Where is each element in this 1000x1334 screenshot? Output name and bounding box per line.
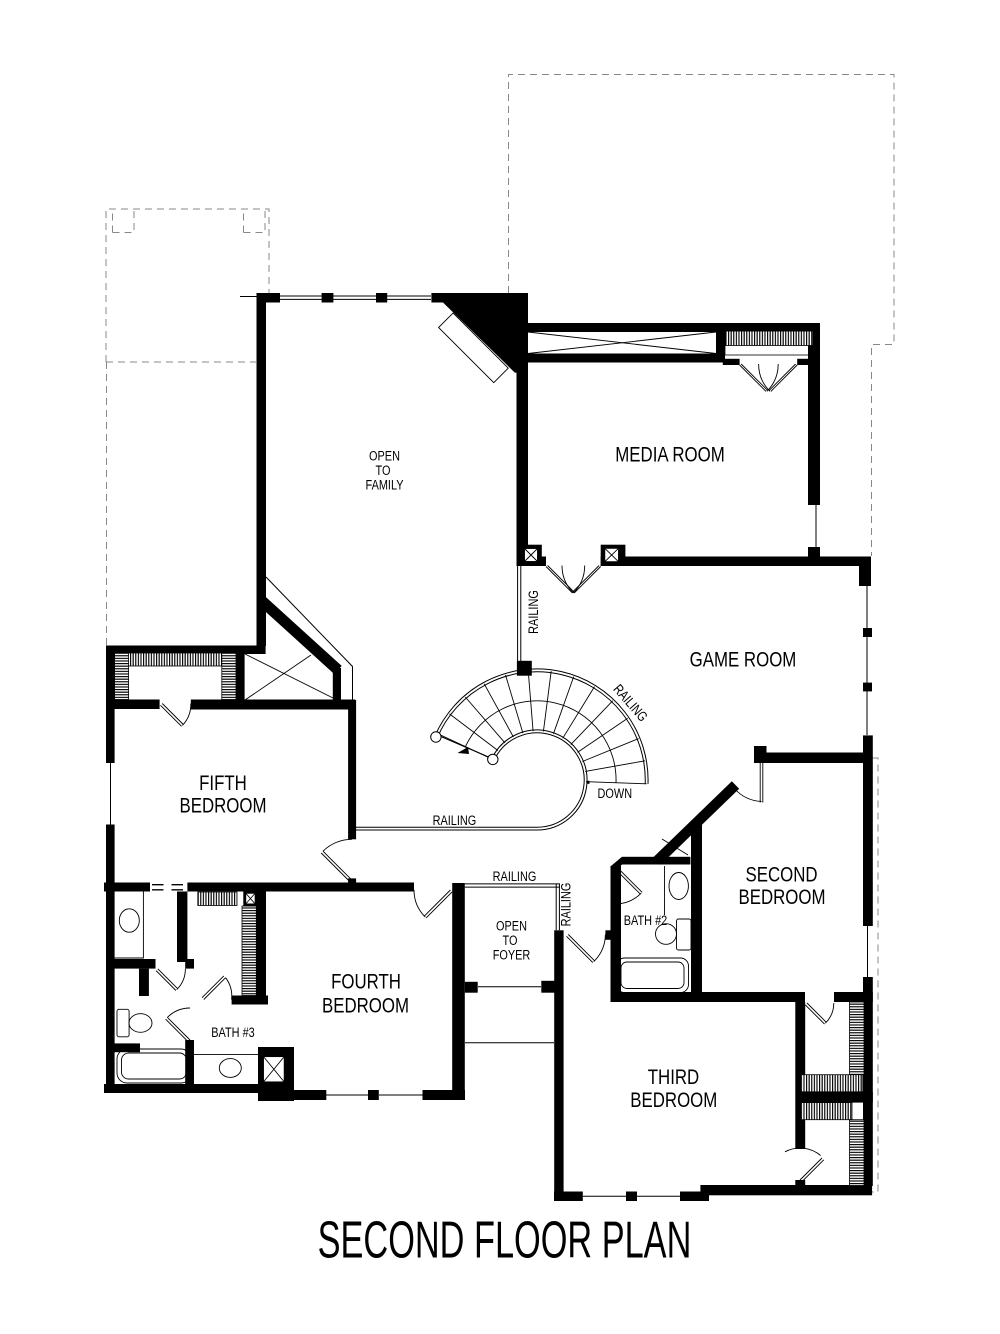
svg-text:SECOND FLOOR PLAN: SECOND FLOOR PLAN: [318, 1211, 692, 1269]
svg-text:BEDROOM: BEDROOM: [322, 994, 409, 1019]
svg-text:FIFTH: FIFTH: [199, 771, 247, 796]
svg-text:BEDROOM: BEDROOM: [179, 794, 266, 819]
svg-text:SECOND: SECOND: [745, 862, 817, 887]
svg-text:FOYER: FOYER: [493, 947, 531, 963]
svg-text:THIRD: THIRD: [648, 1065, 699, 1090]
svg-text:GAME ROOM: GAME ROOM: [690, 648, 797, 673]
svg-text:OPEN: OPEN: [369, 448, 400, 464]
svg-text:FOURTH: FOURTH: [331, 970, 401, 995]
svg-text:RAILING: RAILING: [558, 883, 574, 927]
svg-text:BEDROOM: BEDROOM: [738, 885, 825, 910]
svg-text:RAILING: RAILING: [433, 813, 477, 829]
svg-text:BATH #3: BATH #3: [211, 1025, 254, 1041]
svg-text:DOWN: DOWN: [598, 786, 633, 802]
svg-text:BEDROOM: BEDROOM: [630, 1088, 717, 1113]
svg-text:OPEN: OPEN: [496, 918, 527, 934]
svg-text:RAILING: RAILING: [526, 590, 542, 634]
svg-text:TO: TO: [503, 933, 518, 949]
svg-text:FAMILY: FAMILY: [365, 477, 404, 493]
svg-text:RAILING: RAILING: [493, 869, 537, 885]
svg-text:TO: TO: [376, 463, 391, 479]
svg-text:MEDIA ROOM: MEDIA ROOM: [615, 443, 724, 468]
svg-text:BATH #2: BATH #2: [624, 913, 667, 929]
